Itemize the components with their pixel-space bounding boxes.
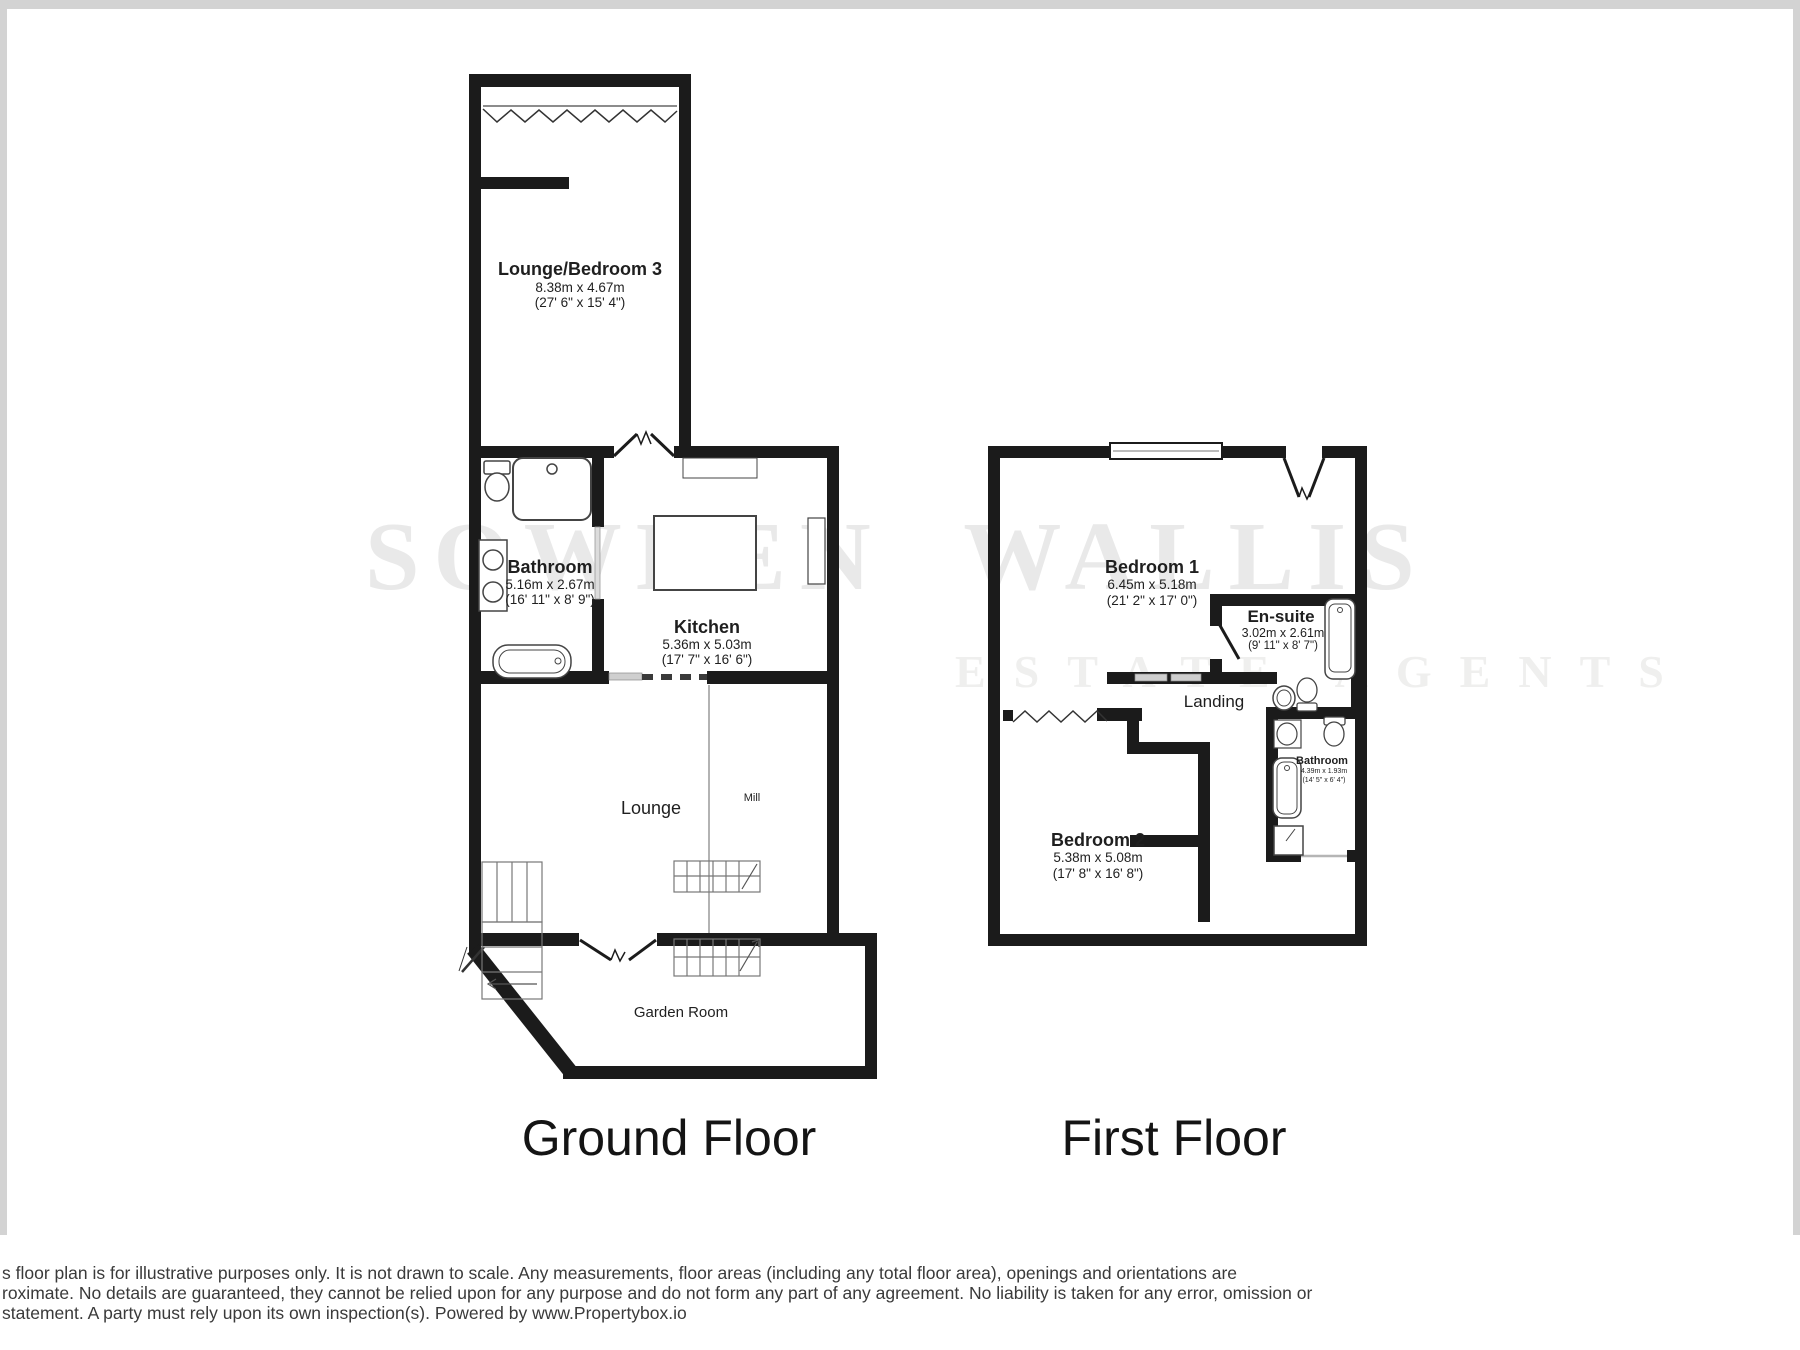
shower-icon: [1274, 826, 1303, 855]
room-dim-metric: 4.39m x 1.93m: [1301, 768, 1347, 775]
room-dim-metric: 5.38m x 5.08m: [1053, 850, 1142, 865]
kitchen-island: [654, 516, 756, 590]
window-icon: [1013, 711, 1107, 722]
kitchen-counter: [683, 458, 757, 478]
room-label-bedroom1: Bedroom 1: [1105, 557, 1199, 578]
ground-floor-title: Ground Floor: [522, 1109, 817, 1167]
room-dim-imperial: (21' 2" x 17' 0"): [1107, 593, 1198, 608]
toilet-icon: [484, 461, 510, 501]
room-dim-metric: 6.45m x 5.18m: [1107, 577, 1196, 592]
room-label-garden-room: Garden Room: [634, 1004, 728, 1021]
room-label-landing: Landing: [1184, 692, 1245, 712]
bathtub-icon: [1273, 758, 1301, 818]
room-dim-metric: 5.16m x 2.67m: [505, 577, 594, 592]
disclaimer-line-2: roximate. No details are guaranteed, the…: [2, 1283, 1312, 1303]
room-label-mill: Mill: [744, 792, 761, 804]
floorplan-page: SOWDEN WALLIS ESTATE AGENTS: [0, 0, 1800, 1350]
room-dim-imperial: (16' 11" x 8' 9"): [505, 592, 595, 607]
room-dim-metric: 8.38m x 4.67m: [535, 280, 624, 295]
floorplan-drawing: [7, 9, 1800, 1241]
room-label-bathroom-gf: Bathroom: [508, 557, 593, 578]
toilet-icon: [1324, 717, 1345, 746]
kitchen-counter: [808, 518, 825, 584]
plan-frame: SOWDEN WALLIS ESTATE AGENTS: [0, 0, 1800, 1235]
bathtub-icon: [1325, 599, 1355, 679]
room-dim-imperial: (17' 7" x 16' 6"): [662, 652, 753, 667]
basin-icon: [479, 540, 507, 611]
room-dim-imperial: (9' 11" x 8' 7"): [1248, 640, 1318, 652]
door-icon: [595, 527, 600, 599]
room-label-bathroom-ff: Bathroom: [1296, 755, 1348, 767]
room-dim-metric: 5.36m x 5.03m: [662, 637, 751, 652]
door-icon: [580, 940, 656, 961]
room-dim-imperial: (17' 8" x 16' 8"): [1053, 866, 1144, 881]
disclaimer-line-1: s floor plan is for illustrative purpose…: [2, 1263, 1237, 1283]
sink-icon: [1273, 686, 1295, 710]
door-icon: [614, 432, 674, 456]
room-label-bedroom2: Bedroom 2: [1051, 830, 1145, 851]
window-icon: [483, 106, 677, 122]
door-icon: [1218, 622, 1239, 659]
disclaimer-line-3: statement. A party must rely upon its ow…: [2, 1303, 687, 1323]
room-dim-imperial: (14' 5" x 6' 4"): [1302, 777, 1345, 784]
bathtub-icon: [493, 645, 571, 678]
first-floor-title: First Floor: [1062, 1109, 1287, 1167]
room-label-lounge-bedroom3: Lounge/Bedroom 3: [498, 259, 662, 280]
room-dim-imperial: (27' 6" x 15' 4"): [535, 295, 626, 310]
ground-floor-stairs: [482, 861, 760, 999]
room-label-lounge: Lounge: [621, 798, 681, 819]
window-icon: [1110, 443, 1222, 459]
room-dim-metric: 3.02m x 2.61m: [1242, 626, 1325, 640]
room-label-kitchen: Kitchen: [674, 617, 740, 638]
sink-icon: [1274, 720, 1301, 748]
shower-icon: [513, 458, 591, 520]
door-icon: [1284, 458, 1324, 499]
toilet-icon: [1297, 678, 1317, 711]
room-label-ensuite: En-suite: [1247, 607, 1314, 627]
stairs-icon: [674, 861, 760, 892]
